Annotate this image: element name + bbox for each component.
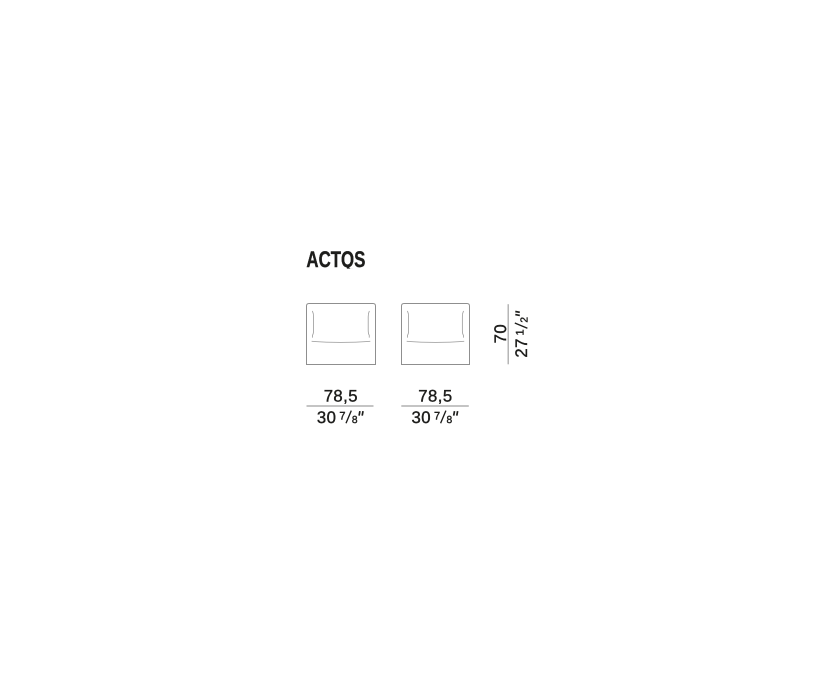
svg-text:30: 30 xyxy=(317,408,336,427)
svg-text:27: 27 xyxy=(512,338,531,357)
svg-text:2: 2 xyxy=(519,317,530,323)
svg-text:7: 7 xyxy=(434,411,440,423)
svg-text:ACTQS: ACTQS xyxy=(306,247,365,272)
svg-text:8: 8 xyxy=(352,415,358,426)
svg-text:30: 30 xyxy=(412,408,431,427)
svg-text:1: 1 xyxy=(515,329,527,335)
svg-text:7: 7 xyxy=(339,411,345,423)
svg-text:70: 70 xyxy=(491,324,510,343)
svg-text:78,5: 78,5 xyxy=(324,386,358,405)
svg-text:8: 8 xyxy=(447,415,453,426)
svg-text:78,5: 78,5 xyxy=(418,386,452,405)
